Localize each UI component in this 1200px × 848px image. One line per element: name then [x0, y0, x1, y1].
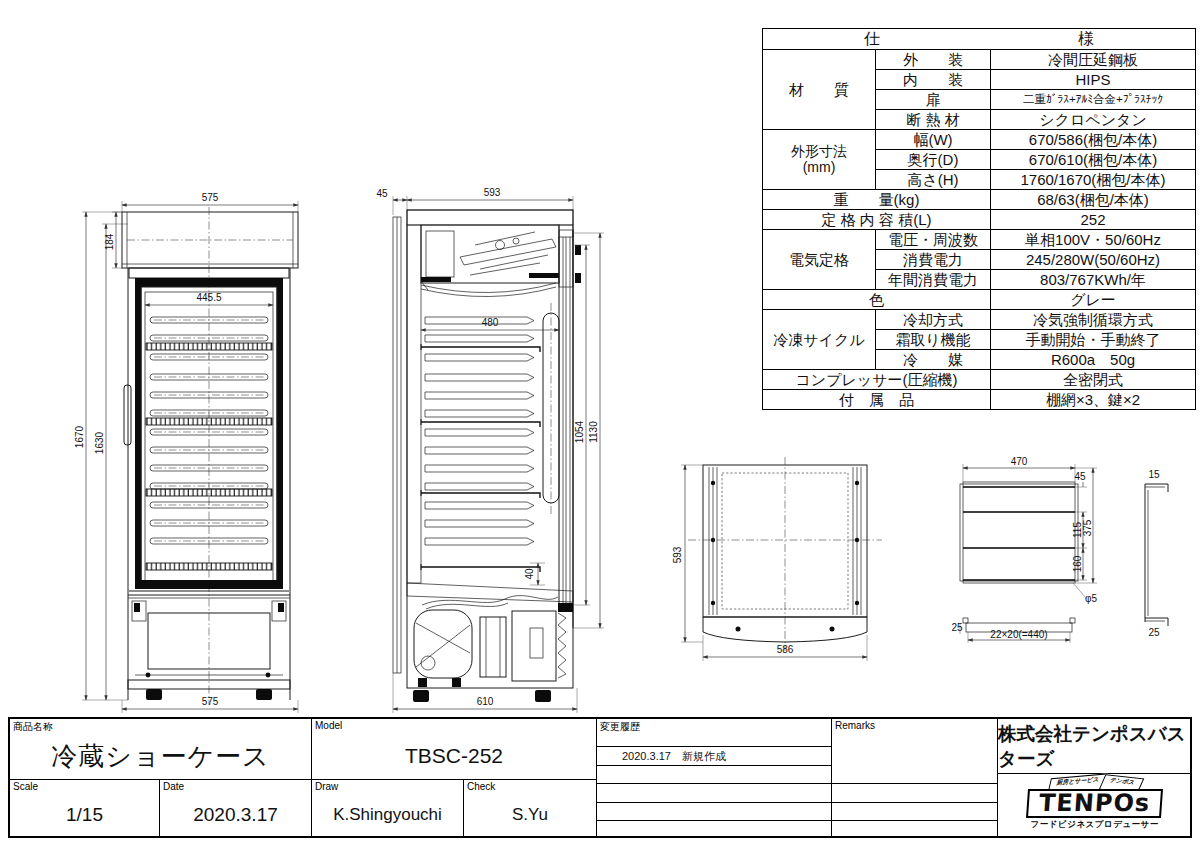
spec-capacity-key: 定 格 内 容 積(L): [763, 210, 991, 230]
dim-side-front-height: 1130: [588, 421, 599, 443]
spec-weight-val: 68/63(梱包/本体): [991, 190, 1196, 210]
spec-color-key: 色: [763, 290, 991, 310]
spec-refrigeration-label: 冷凍サイクル: [763, 310, 876, 370]
dim-side-inner-depth: 480: [482, 317, 499, 328]
compressor-unit: [414, 596, 566, 687]
dim-side-door-height: 1054: [574, 420, 585, 443]
spec-cooling-val: 冷気強制循環方式: [991, 310, 1196, 330]
draw-value: K.Shingyouchi: [312, 794, 463, 836]
spec-defrost-val: 手動開始・手動終了: [991, 330, 1196, 350]
spec-defrost-key: 霜取り機能: [876, 330, 991, 350]
scale-value: 1/15: [10, 794, 159, 836]
history-entry: 2020.3.17 新規作成: [622, 749, 726, 764]
spec-dim-depth-val: 670/610(梱包/本体): [991, 150, 1196, 170]
spec-electrical-label: 電気定格: [763, 230, 876, 290]
side-view-drawing: 45 593 480: [330, 185, 650, 740]
spec-material-exterior-key: 外 装: [876, 50, 991, 70]
dim-side-depth: 593: [484, 187, 501, 198]
spec-capacity-val: 252: [991, 210, 1196, 230]
logo-tagline: フードビジネスプロデューサー: [998, 819, 1191, 831]
top-view-drawing: 593 586: [660, 435, 895, 675]
company-name: 株式会社テンポスバスターズ: [998, 719, 1191, 774]
dim-side-floor-gap: 40: [524, 568, 535, 580]
date-cell: Date 2020.3.17: [160, 780, 312, 836]
spec-refrigerant-val: R600a 50g: [991, 350, 1196, 370]
check-cell: Check S.Yu: [464, 780, 597, 836]
spec-accessories-key: 付 属 品: [763, 390, 991, 410]
dim-side-base-depth: 610: [477, 696, 494, 707]
spec-dim-height-val: 1760/1670(梱包/本体): [991, 170, 1196, 190]
title-block: 商品名称 冷蔵ショーケース Model TBSC-252 Scale 1/15 …: [8, 717, 1192, 838]
dim-shelf-e2: 15: [1148, 469, 1160, 480]
spec-dimensions-label: 外形寸法(mm): [763, 130, 876, 190]
date-value: 2020.3.17: [160, 794, 311, 836]
spec-cooling-key: 冷却方式: [876, 310, 991, 330]
spec-material-door-key: 扉: [876, 90, 991, 110]
company-section: 株式会社テンポスバスターズ 厨房とサービス テンポス TENPOs フードビジネ…: [998, 719, 1191, 836]
shelf-detail-drawing: 470 45 115 160 375 φ5 25 22×20(=440) 15 …: [930, 440, 1200, 665]
remarks-section: Remarks: [832, 719, 998, 836]
company-logo: 厨房とサービス テンポス TENPOs フードビジネスプロデューサー: [998, 774, 1191, 836]
dim-shelf-width: 470: [1011, 456, 1028, 467]
spec-compressor-key: コンプレッサー(圧縮機): [763, 370, 991, 390]
product-name: 冷蔵ショーケース: [10, 733, 311, 779]
spec-power-val: 245/280W(50/60Hz): [991, 250, 1196, 270]
spec-dim-width-val: 670/586(梱包/本体): [991, 130, 1196, 150]
back-wall-slats-side: [425, 317, 534, 545]
model-value: TBSC-252: [312, 733, 596, 779]
dim-shelf-s1: 45: [1074, 471, 1086, 482]
dim-shelf-pitch: 22×20(=440): [990, 629, 1047, 640]
front-view-drawing: 575 1670 1630 184 445.5: [40, 185, 330, 740]
logo-wordmark: TENPOs: [1026, 789, 1163, 818]
spec-table: 仕様 材 質 外 装 冷間圧延鋼板 内 装 HIPS 扉 二重ｶﾞﾗｽ+ｱﾙﾐ合…: [762, 28, 1196, 410]
spec-material-insulation-key: 断 熱 材: [876, 110, 991, 130]
drawing-sheet: 575 1670 1630 184 445.5: [0, 0, 1200, 848]
dim-shelf-s3: 160: [1072, 555, 1083, 572]
spec-voltage-key: 電圧・周波数: [876, 230, 991, 250]
spec-accessories-val: 棚網×3、鍵×2: [991, 390, 1196, 410]
draw-cell: Draw K.Shingyouchi: [312, 780, 464, 836]
spec-annual-val: 803/767KWh/年: [991, 270, 1196, 290]
spec-voltage-val: 単相100V・50/60Hz: [991, 230, 1196, 250]
dim-top-width: 586: [777, 644, 794, 655]
model-cell: Model TBSC-252: [312, 719, 597, 780]
spec-dim-height-key: 高さ(H): [876, 170, 991, 190]
spec-weight-key: 重 量(kg): [763, 190, 991, 210]
spec-header: 仕様: [763, 29, 1196, 50]
dim-shelf-e1: 25: [951, 622, 963, 633]
dim-front-overall-height: 1670: [74, 425, 85, 448]
dim-front-bottom-width: 575: [202, 696, 219, 707]
scale-cell: Scale 1/15: [10, 780, 160, 836]
dim-front-canopy-height: 184: [104, 233, 115, 250]
dim-shelf-e3: 25: [1148, 627, 1160, 638]
spec-dim-width-key: 幅(W): [876, 130, 991, 150]
spec-material-interior-key: 内 装: [876, 70, 991, 90]
dim-top-depth: 593: [672, 546, 683, 563]
dim-front-top-width: 575: [202, 192, 219, 203]
dim-shelf-wire: φ5: [1085, 593, 1097, 604]
spec-color-val: グレー: [991, 290, 1196, 310]
change-history-section: 変更履歴 2020.3.17 新規作成: [597, 719, 832, 836]
dim-front-inner-width: 445.5: [196, 292, 221, 303]
spec-dim-depth-key: 奥行(D): [876, 150, 991, 170]
spec-annual-key: 年間消費電力: [876, 270, 991, 290]
spec-material-interior-val: HIPS: [991, 70, 1196, 90]
dim-front-body-height: 1630: [94, 431, 105, 454]
spec-material-exterior-val: 冷間圧延鋼板: [991, 50, 1196, 70]
shelf-side-profile: 15 25: [1145, 469, 1168, 638]
product-name-cell: 商品名称 冷蔵ショーケース: [10, 719, 312, 780]
spec-material-insulation-val: シクロペンタン: [991, 110, 1196, 130]
spec-power-key: 消費電力: [876, 250, 991, 270]
check-value: S.Yu: [464, 794, 596, 836]
evaporator-unit: [421, 225, 559, 297]
dim-shelf-depth: 375: [1082, 519, 1093, 536]
spec-material-door-val: 二重ｶﾞﾗｽ+ｱﾙﾐ合金+ﾌﾟﾗｽﾁｯｸ: [991, 90, 1196, 110]
spec-refrigerant-key: 冷 媒: [876, 350, 991, 370]
spec-compressor-val: 全密閉式: [991, 370, 1196, 390]
spec-material-label: 材 質: [763, 50, 876, 130]
dim-side-rear-gap: 45: [376, 188, 388, 199]
